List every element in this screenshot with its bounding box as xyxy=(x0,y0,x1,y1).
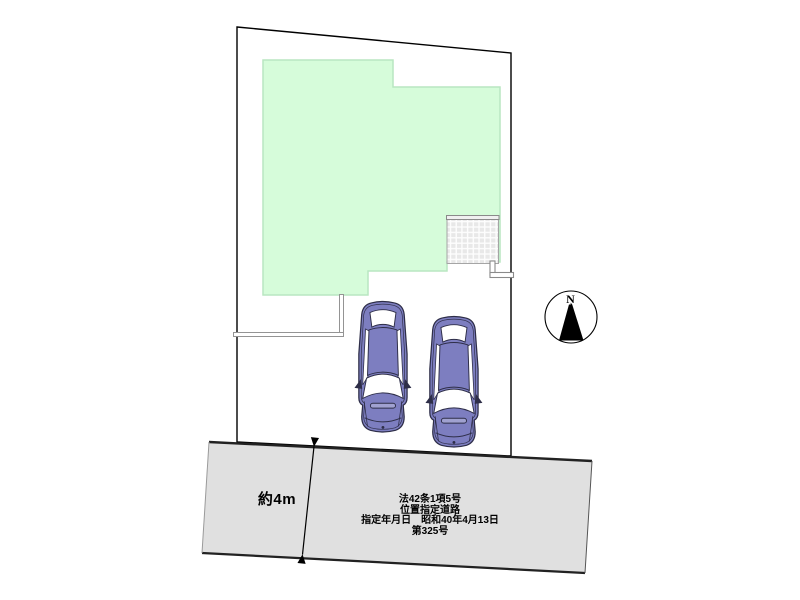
fence-line-horizontal xyxy=(234,333,344,337)
parked-car-2 xyxy=(425,316,482,447)
site-plan-page: N 約4m 法42条1項5号 位置指定道路 指定年月日 昭和40年4月13日 第… xyxy=(0,0,800,600)
parked-car-1 xyxy=(354,301,411,432)
road-designation-line-3: 指定年月日 昭和40年4月13日 xyxy=(320,516,540,527)
entrance-top-edge xyxy=(447,216,500,220)
road-designation-line-4: 第325号 xyxy=(320,527,540,538)
north-compass: N xyxy=(545,291,597,343)
road-designation-line-1: 法42条1項5号 xyxy=(320,495,540,506)
entrance-tile-area xyxy=(447,216,500,264)
fence-line-vertical xyxy=(340,295,344,337)
road-width-label: 約4m xyxy=(237,488,317,509)
north-label: N xyxy=(566,292,575,306)
road-designation-text: 法42条1項5号 位置指定道路 指定年月日 昭和40年4月13日 第325号 xyxy=(320,495,540,537)
